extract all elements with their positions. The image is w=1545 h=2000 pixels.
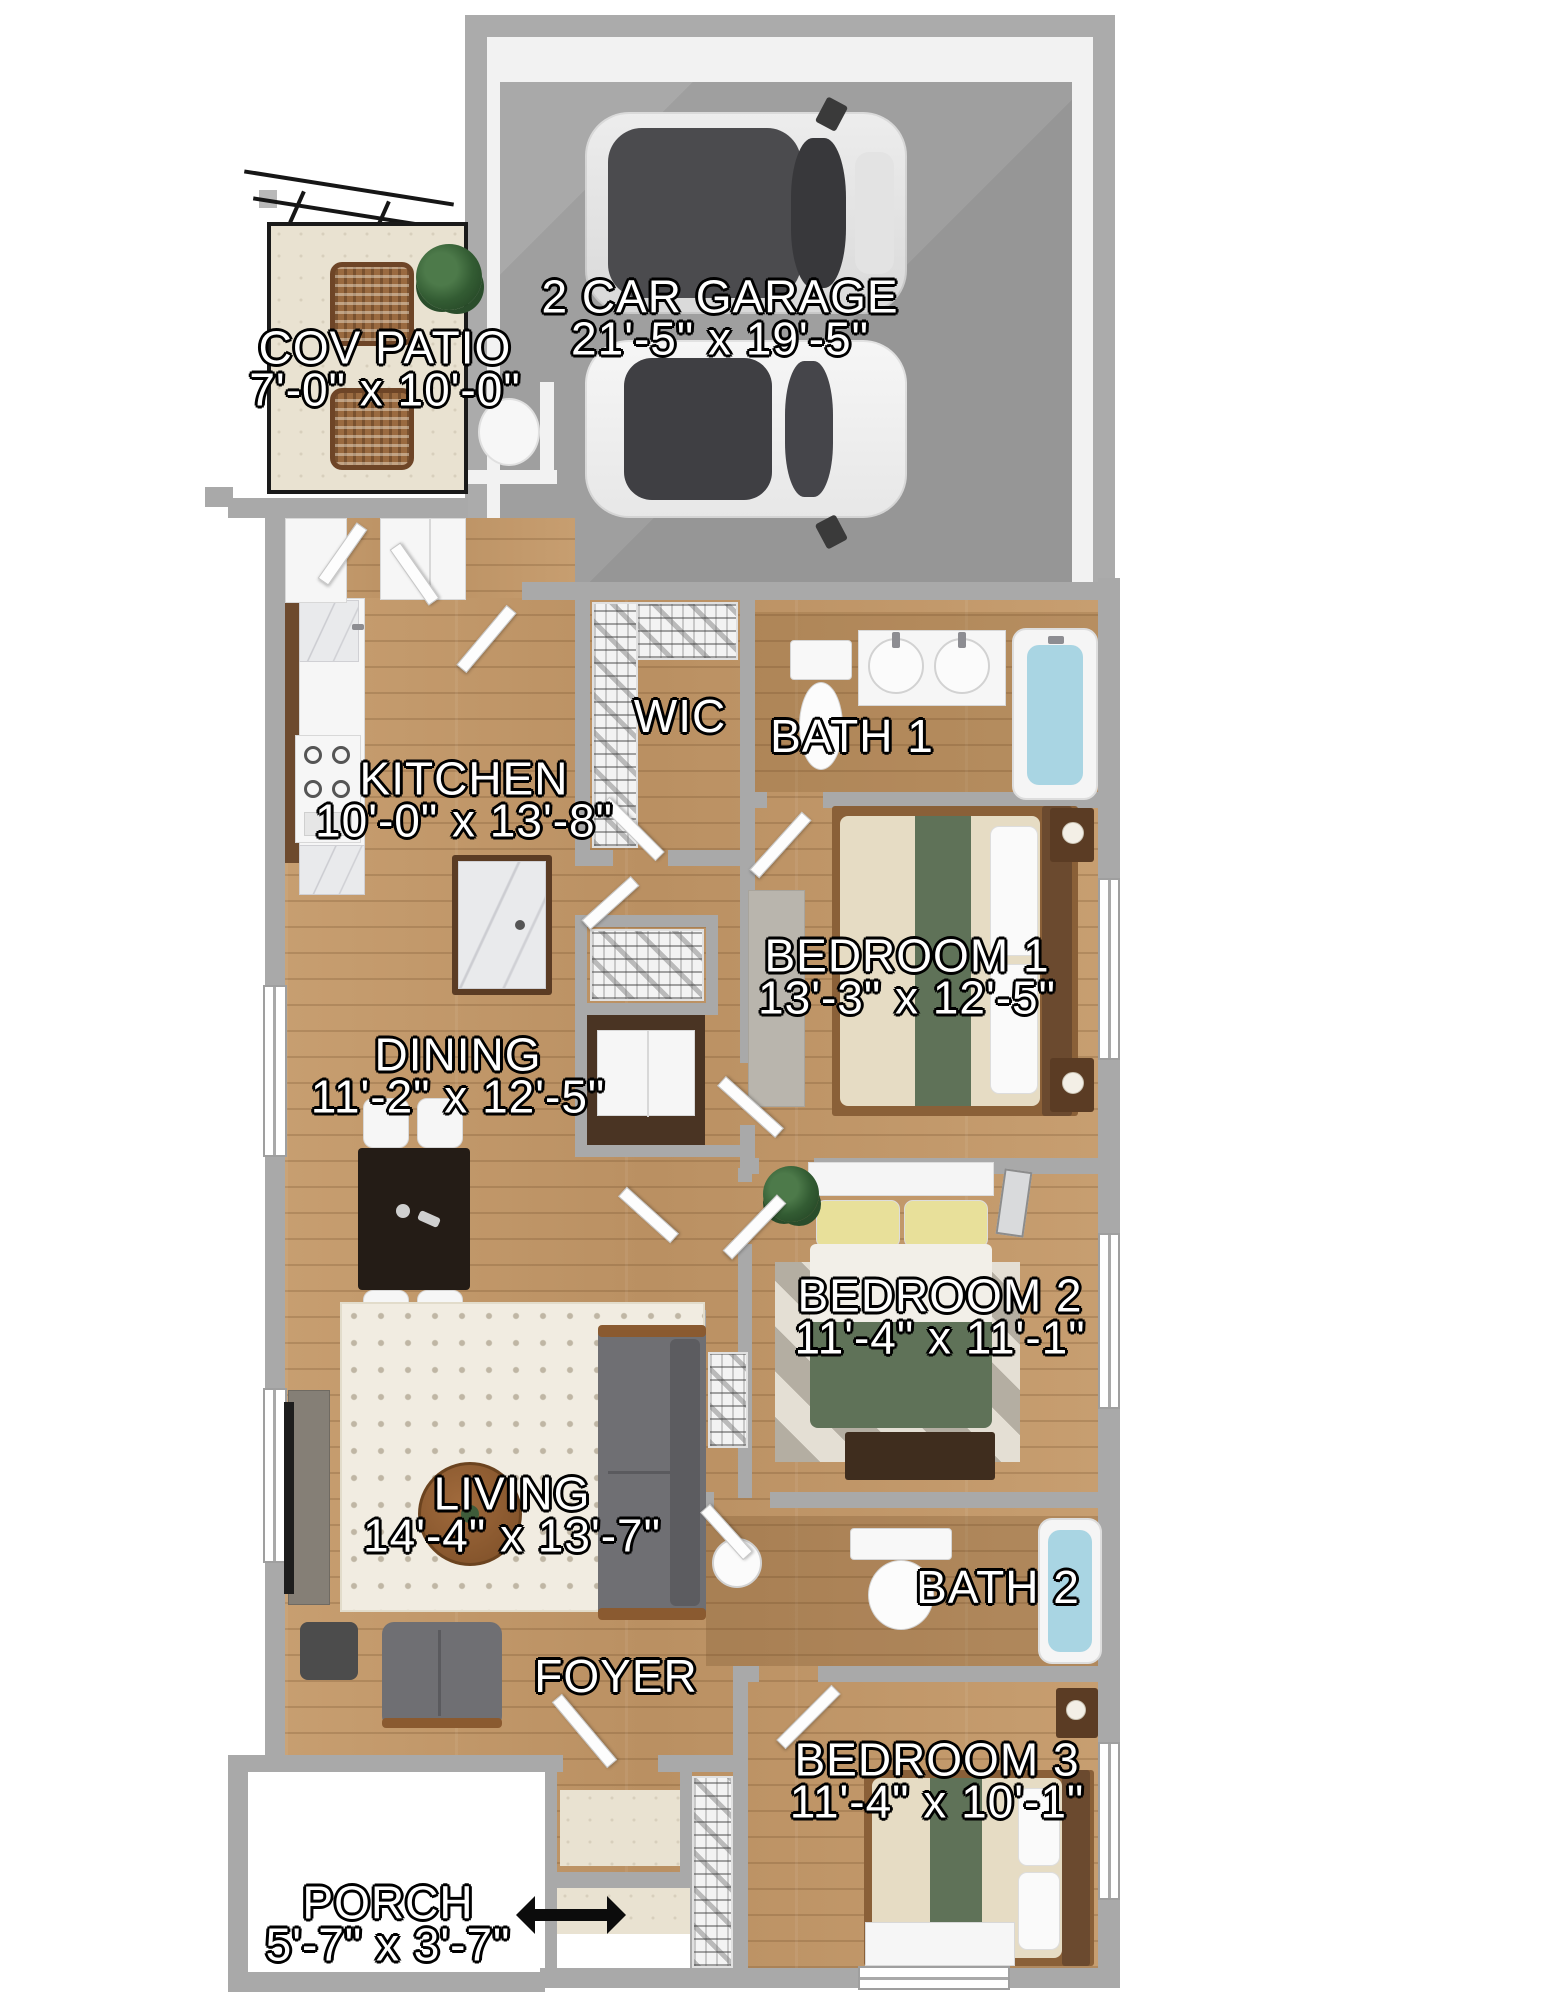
room-label-dining: DINING 11'-2" x 12'-5" xyxy=(311,1034,606,1119)
laundry-units xyxy=(597,1030,695,1116)
room-name: BATH 1 xyxy=(770,715,934,757)
wall xyxy=(228,1755,248,1992)
armchair xyxy=(382,1622,502,1728)
lamp xyxy=(1066,1700,1086,1720)
room-dims: 5'-7" x 3'-7" xyxy=(266,1924,511,1966)
room-name: 2 CAR GARAGE xyxy=(541,276,898,318)
room-label-wic: WIC xyxy=(634,695,726,737)
floor-plan: 2 CAR GARAGE 21'-5" x 19'-5" COV PATIO 7… xyxy=(0,0,1545,2000)
room-label-kitchen: KITCHEN 10'-0" x 13'-8" xyxy=(315,758,613,843)
lamp xyxy=(1062,1072,1084,1094)
kitchen-sink-counter xyxy=(299,600,359,662)
wall xyxy=(738,1168,752,1182)
room-label-porch: PORCH 5'-7" x 3'-7" xyxy=(266,1882,511,1967)
room-dims: 10'-0" x 13'-8" xyxy=(315,800,613,842)
car-white xyxy=(585,340,907,518)
porch-step-lower xyxy=(557,1934,690,1968)
kitchen-island-top xyxy=(458,861,546,989)
wall xyxy=(228,498,468,518)
wall xyxy=(818,1666,1100,1682)
window xyxy=(858,1966,1010,1990)
room-dims: 11'-4" x 11'-1" xyxy=(794,1317,1085,1359)
bath1-tub-water xyxy=(1027,645,1083,785)
garage-alcove-wall xyxy=(540,382,554,482)
wall xyxy=(522,582,1115,600)
room-label-living: LIVING 14'-4" x 13'-7" xyxy=(363,1473,661,1558)
wall xyxy=(706,915,718,1015)
wall xyxy=(545,1772,557,1984)
window xyxy=(263,985,287,1157)
bed2-pillow xyxy=(904,1200,988,1248)
wall xyxy=(740,598,755,858)
room-name: BEDROOM 1 xyxy=(758,935,1056,977)
tv-console xyxy=(288,1390,330,1605)
toilet xyxy=(850,1528,952,1560)
room-name: FOYER xyxy=(534,1655,697,1697)
bath1-faucet xyxy=(958,632,966,648)
wall xyxy=(540,1968,862,1988)
room-label-bedroom1: BEDROOM 1 13'-3" x 12'-5" xyxy=(758,935,1056,1020)
room-name: BEDROOM 2 xyxy=(794,1275,1085,1317)
hall-linen-closet xyxy=(708,1352,748,1448)
patio-plant xyxy=(416,244,482,310)
room-label-cov-patio: COV PATIO 7'-0" x 10'-0" xyxy=(249,327,520,412)
entry-closet-shelving xyxy=(692,1776,733,1968)
room-dims: 11'-2" x 12'-5" xyxy=(311,1076,606,1118)
bed3-pillow xyxy=(1018,1872,1060,1950)
entry-arrow-icon xyxy=(505,1896,637,1934)
wall xyxy=(545,1872,690,1888)
lamp xyxy=(1062,822,1084,844)
room-label-bath1: BATH 1 xyxy=(770,715,934,757)
room-name: BEDROOM 3 xyxy=(790,1739,1085,1781)
wall xyxy=(228,1972,545,1992)
pantry-cabinet xyxy=(430,518,466,600)
wall xyxy=(770,1492,1100,1508)
wall xyxy=(575,1145,755,1157)
room-label-bedroom3: BEDROOM 3 11'-4" x 10'-1" xyxy=(790,1739,1085,1824)
window xyxy=(1098,1233,1120,1409)
bedroom2-dresser xyxy=(845,1432,995,1480)
window xyxy=(1098,878,1120,1060)
window xyxy=(1098,1742,1120,1900)
garage-alcove-wall xyxy=(465,470,557,484)
tub-faucet xyxy=(1048,636,1064,644)
bed2-pillow xyxy=(816,1200,900,1248)
wall xyxy=(733,1666,748,1988)
bath1-faucet xyxy=(892,632,900,648)
room-label-foyer: FOYER xyxy=(534,1655,697,1697)
island-faucet xyxy=(515,920,525,930)
room-label-bedroom2: BEDROOM 2 11'-4" x 11'-1" xyxy=(794,1275,1085,1360)
room-dims: 21'-5" x 19'-5" xyxy=(541,318,898,360)
room-dims: 11'-4" x 10'-1" xyxy=(790,1781,1085,1823)
vestibule-mat xyxy=(560,1790,680,1866)
bedroom3-window-sill xyxy=(865,1922,1015,1966)
tv xyxy=(284,1402,294,1594)
room-dims: 13'-3" x 12'-5" xyxy=(758,977,1056,1019)
side-table xyxy=(300,1622,358,1680)
wall xyxy=(755,792,767,808)
bed2-headboard xyxy=(808,1162,994,1196)
room-name: PORCH xyxy=(266,1882,511,1924)
room-name: DINING xyxy=(311,1034,606,1076)
wall xyxy=(680,1755,740,1772)
kitchen-faucet xyxy=(352,624,364,630)
wall xyxy=(575,1003,718,1015)
room-dims: 14'-4" x 13'-7" xyxy=(363,1515,661,1557)
hall-closet-shelving xyxy=(590,929,704,1001)
room-name: LIVING xyxy=(363,1473,661,1515)
room-name: KITCHEN xyxy=(315,758,613,800)
room-name: COV PATIO xyxy=(249,327,520,369)
dining-table xyxy=(358,1148,470,1290)
room-label-garage: 2 CAR GARAGE 21'-5" x 19'-5" xyxy=(541,276,898,361)
wall xyxy=(740,1125,755,1170)
room-dims: 7'-0" x 10'-0" xyxy=(249,369,520,411)
toilet xyxy=(790,640,852,680)
room-name: WIC xyxy=(634,695,726,737)
room-name: BATH 2 xyxy=(916,1566,1080,1608)
room-label-bath2: BATH 2 xyxy=(916,1566,1080,1608)
kitchen-counter-bottom xyxy=(299,845,365,895)
